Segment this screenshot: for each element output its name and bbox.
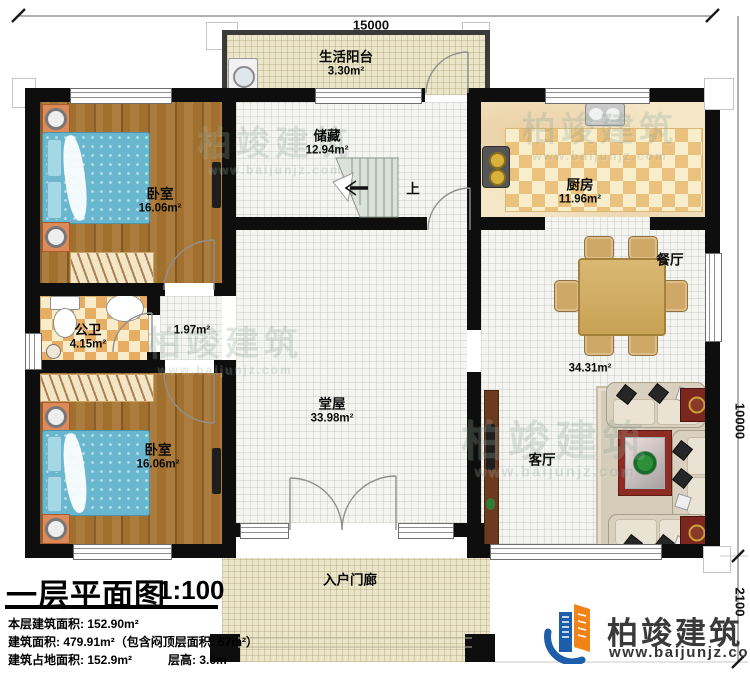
- room-label-porch: 入户门廊: [323, 574, 377, 589]
- room-label-dining: 餐厅: [657, 254, 684, 269]
- dimension-top: 15000: [353, 18, 389, 33]
- company-logo-icon: [540, 600, 602, 664]
- room-area: 4.15m²: [70, 338, 106, 351]
- room-area: 3.30m²: [319, 65, 373, 78]
- dimension-right-upper: 10000: [733, 403, 748, 439]
- room-name: 餐厅: [657, 254, 684, 269]
- company-website: www.baijunjz.com: [609, 644, 750, 661]
- porch-steps: [238, 638, 472, 647]
- room-label-storage: 储藏 12.94m²: [306, 129, 349, 156]
- room-name: 储藏: [306, 129, 349, 144]
- room-label-balcony: 生活阳台 3.30m²: [319, 50, 373, 77]
- room-area: 16.06m²: [137, 458, 180, 471]
- room-area: 12.94m²: [306, 144, 349, 157]
- room-name: 堂屋: [311, 397, 354, 412]
- room-name: 厨房: [559, 178, 601, 193]
- room-label-hallway: 1.97m²: [174, 325, 210, 338]
- room-area: 34.31m²: [569, 363, 612, 376]
- room-name: 公卫: [70, 323, 106, 338]
- room-label-kitchen: 厨房 11.96m²: [559, 178, 601, 205]
- stat-total-area: 建筑面积: 479.91m²（包含闷顶层面积: 57m²）: [8, 633, 258, 650]
- room-label-bedroom-bottom: 卧室 16.06m²: [137, 443, 180, 470]
- room-name: 卧室: [139, 187, 182, 202]
- room-label-main-hall: 堂屋 33.98m²: [311, 397, 354, 424]
- stat-storey-height: 层高: 3.6m: [168, 651, 227, 668]
- door-bathroom: [113, 313, 152, 352]
- room-name: 入户门廊: [323, 574, 377, 589]
- door-entry-left: [290, 478, 342, 530]
- room-area-living: 34.31m²: [569, 363, 612, 376]
- room-label-bedroom-top: 卧室 16.06m²: [139, 187, 182, 214]
- door-balcony: [426, 52, 468, 93]
- room-name: 卧室: [137, 443, 180, 458]
- room-name: 生活阳台: [319, 50, 373, 65]
- room-area: 16.06m²: [139, 202, 182, 215]
- stairs: [333, 158, 398, 217]
- stairs-up-label: 上: [406, 183, 420, 198]
- room-area: 11.96m²: [559, 193, 601, 206]
- door-storage: [428, 188, 470, 230]
- room-name: 客厅: [529, 454, 556, 469]
- room-area: 1.97m²: [174, 325, 210, 338]
- room-label-bathroom: 公卫 4.15m²: [70, 323, 106, 350]
- stairs-direction: 上: [406, 183, 420, 198]
- door-entry-right: [342, 476, 396, 530]
- room-label-living: 客厅: [529, 454, 556, 469]
- stat-floor-area: 本层建筑面积: 152.90m²: [8, 615, 139, 632]
- door-bedroom-top: [164, 240, 214, 290]
- room-area: 33.98m²: [311, 412, 354, 425]
- stat-footprint: 建筑占地面积: 152.9m²: [8, 651, 132, 668]
- door-bedroom-bottom: [164, 373, 214, 423]
- floor-plan-canvas: 柏竣建筑 www.baijunjz.com 柏竣建筑 www.baijunjz.…: [0, 0, 750, 673]
- title-divider: [5, 605, 218, 609]
- plan-scale: 1:100: [158, 575, 225, 606]
